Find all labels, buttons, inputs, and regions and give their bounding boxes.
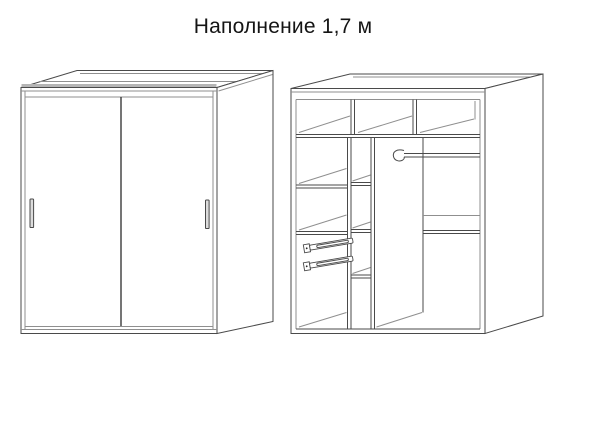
top-edge-shaded-band [22, 84, 217, 87]
wardrobe-interior-view [291, 74, 543, 334]
wardrobe-closed-view [21, 71, 273, 334]
front-face [21, 88, 217, 334]
diagram-page: Наполнение 1,7 м [0, 0, 600, 422]
right-side-face [217, 71, 273, 334]
wardrobe-diagram [0, 0, 600, 422]
right-side-face [485, 74, 543, 334]
door-handle-left [30, 199, 34, 228]
door-handle-right [206, 200, 210, 229]
